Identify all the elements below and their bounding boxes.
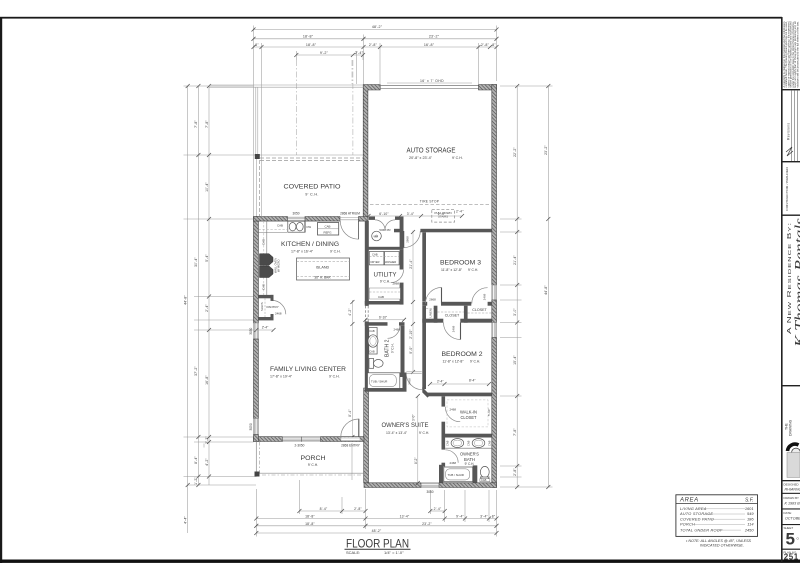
svg-text:TOTAL UNDER ROOF: TOTAL UNDER ROOF xyxy=(680,527,723,532)
svg-text:KITCHEN / DINING: KITCHEN / DINING xyxy=(281,241,339,248)
svg-text:CAB: CAB xyxy=(378,295,384,299)
svg-text:CAB: CAB xyxy=(262,239,266,245)
svg-text:REFG: REFG xyxy=(324,231,333,235)
svg-text:CAB: CAB xyxy=(325,224,331,228)
svg-text:18'-8": 18'-8" xyxy=(303,35,314,39)
svg-text:OWNER'S: OWNER'S xyxy=(460,452,479,457)
svg-text:DRAWN BY: DRAWN BY xyxy=(784,496,800,500)
svg-text:CAB: CAB xyxy=(372,252,378,256)
svg-text:3050: 3050 xyxy=(426,490,433,494)
svg-text:CLOSET: CLOSET xyxy=(445,314,460,318)
svg-text:17'-8" x 19'-4": 17'-8" x 19'-4" xyxy=(270,375,293,379)
svg-text:4'-2": 4'-2" xyxy=(348,308,352,316)
svg-text:WASHER: WASHER xyxy=(385,260,396,264)
svg-text:20'-8" x 23'-4": 20'-8" x 23'-4" xyxy=(409,156,433,160)
svg-text:23'-2": 23'-2" xyxy=(429,35,440,39)
svg-text:2668: 2668 xyxy=(429,297,436,301)
svg-text:8": 8" xyxy=(492,43,496,47)
svg-text:W/ MICRO: W/ MICRO xyxy=(277,259,281,272)
svg-text:BEDROOM 2: BEDROOM 2 xyxy=(442,351,483,358)
svg-text:OCTOBER: OCTOBER xyxy=(785,516,800,520)
svg-text:9' C.H.: 9' C.H. xyxy=(329,375,340,379)
svg-text:K 1983 B: K 1983 B xyxy=(785,502,800,506)
svg-text:2'-10": 2'-10" xyxy=(409,329,413,339)
svg-text:22'-2": 22'-2" xyxy=(513,146,517,156)
svg-text:1/4" = 1'-0": 1/4" = 1'-0" xyxy=(384,550,404,555)
svg-text:3'-0": 3'-0" xyxy=(412,414,416,421)
svg-text:CAB: CAB xyxy=(466,440,470,446)
svg-text:FLOOR PLAN: FLOOR PLAN xyxy=(346,539,409,551)
svg-text:9'-4": 9'-4" xyxy=(456,515,464,519)
svg-text:9' C.H.: 9' C.H. xyxy=(380,279,390,283)
svg-text:44'-8": 44'-8" xyxy=(544,284,548,294)
svg-text:5'-10": 5'-10" xyxy=(487,409,491,416)
svg-text:Revisions: Revisions xyxy=(787,123,791,140)
svg-text:4'-4": 4'-4" xyxy=(183,516,187,524)
svg-text:2'-4": 2'-4" xyxy=(456,209,464,213)
svg-text:TIRE STOP: TIRE STOP xyxy=(420,199,439,203)
svg-text:2868 ATRIUM: 2868 ATRIUM xyxy=(340,212,360,216)
svg-text:2'-8": 2'-8" xyxy=(354,507,362,511)
svg-text:2'-8": 2'-8" xyxy=(513,468,517,476)
svg-text:CLOSET: CLOSET xyxy=(461,415,477,420)
svg-text:INDICATED OTHERWISE.: INDICATED OTHERWISE. xyxy=(700,544,744,548)
svg-text:FAMILY LIVING CENTER: FAMILY LIVING CENTER xyxy=(270,366,346,373)
svg-text:17'-8" x 16'-4": 17'-8" x 16'-4" xyxy=(291,249,314,253)
svg-text:9' C.H.: 9' C.H. xyxy=(470,359,480,363)
svg-text:18'-8": 18'-8" xyxy=(306,43,317,47)
svg-text:11'-8" x 12'-8": 11'-8" x 12'-8" xyxy=(441,268,463,272)
svg-text:8'-4": 8'-4" xyxy=(469,379,475,383)
svg-text:48'-2": 48'-2" xyxy=(372,529,382,533)
svg-text:37'-2": 37'-2" xyxy=(194,365,198,375)
svg-text:48'-2": 48'-2" xyxy=(372,25,383,29)
svg-text:2868: 2868 xyxy=(405,236,409,243)
svg-text:BATH 2: BATH 2 xyxy=(384,340,390,358)
svg-text:11'-8" x 12'-8": 11'-8" x 12'-8" xyxy=(443,359,465,363)
svg-text:16'-8": 16'-8" xyxy=(424,43,435,47)
svg-text:CAB: CAB xyxy=(369,329,375,333)
svg-text:8": 8" xyxy=(492,515,496,519)
svg-text:K Thomas Rentals: K Thomas Rentals xyxy=(793,217,800,348)
svg-text:2'-8": 2'-8" xyxy=(369,43,378,47)
svg-text:5'-4": 5'-4" xyxy=(205,254,209,262)
svg-text:SHLVS: SHLVS xyxy=(260,302,264,311)
svg-text:3050: 3050 xyxy=(249,423,253,430)
svg-text:7'-8": 7'-8" xyxy=(194,120,198,128)
svg-text:CAB: CAB xyxy=(445,440,449,446)
svg-text:2'-4": 2'-4" xyxy=(437,380,443,384)
svg-text:2868: 2868 xyxy=(393,282,400,286)
svg-text:CAB: CAB xyxy=(277,224,283,228)
svg-text:23'-2": 23'-2" xyxy=(544,144,548,154)
svg-text:8'-4": 8'-4" xyxy=(320,507,328,511)
svg-text:CONTRACTOR / BUILDER: CONTRACTOR / BUILDER xyxy=(785,166,789,211)
svg-text:3'-4": 3'-4" xyxy=(407,212,415,216)
svg-text:9' C.H.: 9' C.H. xyxy=(419,431,429,435)
svg-text:BEDROOM 3: BEDROOM 3 xyxy=(440,259,481,266)
svg-text:2468: 2468 xyxy=(451,325,455,332)
svg-text:6'-10": 6'-10" xyxy=(379,315,387,319)
svg-text:8'-4": 8'-4" xyxy=(348,409,352,417)
svg-text:2'-4": 2'-4" xyxy=(355,51,364,55)
svg-text:CAB: CAB xyxy=(369,350,375,354)
svg-text:23'-2": 23'-2" xyxy=(422,522,432,526)
svg-text:2'-4": 2'-4" xyxy=(438,212,446,216)
svg-text:• NOTE: ALL ANGLES @ 45°, UNL: • NOTE: ALL ANGLES @ 45°, UNLESS xyxy=(686,539,752,543)
svg-text:2468: 2468 xyxy=(482,293,486,300)
svg-text:5: 5 xyxy=(786,530,795,549)
svg-text:3'-0": 3'-0" xyxy=(513,308,517,316)
svg-text:7'-8": 7'-8" xyxy=(205,120,209,128)
svg-text:2450: 2450 xyxy=(744,527,754,532)
svg-text:violators will be prosecuted t: violators will be prosecuted to the full… xyxy=(796,21,799,87)
svg-text:9' C.H.: 9' C.H. xyxy=(452,156,463,160)
svg-text:5068 PR: 5068 PR xyxy=(379,228,390,232)
svg-text:WALK-IN: WALK-IN xyxy=(460,410,477,415)
svg-text:LINEN: LINEN xyxy=(429,309,433,318)
svg-text:9' C.H.: 9' C.H. xyxy=(330,249,341,253)
svg-text:16' x 7' OHD: 16' x 7' OHD xyxy=(420,79,444,83)
svg-text:2'-8": 2'-8" xyxy=(481,43,490,47)
svg-text:2468: 2468 xyxy=(394,328,401,332)
svg-text:9'-0": 9'-0" xyxy=(409,346,413,354)
svg-text:CAB: CAB xyxy=(481,478,487,482)
svg-text:44'-8": 44'-8" xyxy=(183,294,187,304)
svg-text:DRYER: DRYER xyxy=(371,260,380,264)
svg-text:3'-4": 3'-4" xyxy=(480,515,488,519)
svg-text:AUTO STORAGE: AUTO STORAGE xyxy=(407,146,456,155)
svg-text:9' C.H.: 9' C.H. xyxy=(390,343,394,353)
svg-text:15'-4": 15'-4" xyxy=(513,354,517,364)
svg-text:2'-4": 2'-4" xyxy=(262,326,269,330)
svg-text:21'-4": 21'-4" xyxy=(409,259,413,269)
svg-text:PORCH: PORCH xyxy=(301,456,326,462)
svg-text:8'-4": 8'-4" xyxy=(194,456,198,464)
svg-text:S.F.: S.F. xyxy=(745,498,754,504)
svg-text:RHIANNON: RHIANNON xyxy=(785,487,800,491)
svg-text:ISLAND: ISLAND xyxy=(316,265,330,270)
svg-text:PANTRY: PANTRY xyxy=(267,305,279,309)
svg-text:2-3050: 2-3050 xyxy=(295,443,305,447)
svg-text:PORCH: PORCH xyxy=(680,522,695,527)
svg-text:SCALE:: SCALE: xyxy=(346,550,360,555)
svg-text:DESIGNED: DESIGNED xyxy=(784,482,799,486)
svg-text:2'-4": 2'-4" xyxy=(434,507,442,511)
svg-text:10'-4": 10'-4" xyxy=(205,181,209,191)
svg-text:CLOSET: CLOSET xyxy=(472,308,487,312)
svg-text:COVERED PATIO: COVERED PATIO xyxy=(284,184,341,191)
svg-text:6'-10": 6'-10" xyxy=(379,212,389,216)
svg-text:8'-2": 8'-2" xyxy=(414,457,418,464)
svg-text:251: 251 xyxy=(784,552,799,561)
svg-text:UTILITY: UTILITY xyxy=(374,272,397,278)
svg-text:30'-4": 30'-4" xyxy=(194,256,198,266)
svg-text:4'-2": 4'-2" xyxy=(205,458,209,466)
svg-text:9' C.H.: 9' C.H. xyxy=(468,268,478,272)
svg-text:OWNER'S SUITE: OWNER'S SUITE xyxy=(382,422,429,429)
svg-text:2468: 2468 xyxy=(275,311,282,315)
svg-text:DRAWING: DRAWING xyxy=(789,419,793,436)
svg-text:16'-8": 16'-8" xyxy=(205,374,209,384)
svg-text:9' C.H.: 9' C.H. xyxy=(305,193,319,197)
svg-text:2468: 2468 xyxy=(450,461,457,465)
svg-text:CAB: CAB xyxy=(487,440,491,446)
svg-text:TUB / SHUR: TUB / SHUR xyxy=(371,379,387,383)
svg-text:36" H. BAR: 36" H. BAR xyxy=(314,276,331,280)
svg-text:13'-4": 13'-4" xyxy=(400,515,410,519)
svg-text:114: 114 xyxy=(747,522,754,527)
svg-text:9' C.H.: 9' C.H. xyxy=(465,462,475,466)
svg-text:TUB / SHUR: TUB / SHUR xyxy=(448,473,464,477)
svg-text:21'-4": 21'-4" xyxy=(513,254,517,264)
svg-text:3050: 3050 xyxy=(249,327,253,334)
svg-text:DATE:: DATE: xyxy=(784,511,792,515)
svg-text:WH: WH xyxy=(374,234,378,238)
svg-text:3050: 3050 xyxy=(292,212,299,216)
svg-text:13'-4" x 13'-4": 13'-4" x 13'-4" xyxy=(386,431,408,435)
svg-text:18'-8": 18'-8" xyxy=(305,515,315,519)
svg-text:9' C.H.: 9' C.H. xyxy=(308,463,318,467)
svg-text:2468: 2468 xyxy=(408,378,412,385)
svg-text:DW: DW xyxy=(307,225,312,229)
svg-text:2468: 2468 xyxy=(450,407,457,411)
svg-text:18'-8": 18'-8" xyxy=(305,522,315,526)
svg-text:8": 8" xyxy=(255,43,259,47)
svg-text:AREA: AREA xyxy=(679,498,699,504)
svg-text:CAB: CAB xyxy=(262,284,266,290)
svg-text:2'-4": 2'-4" xyxy=(205,304,209,312)
svg-text:7'-8": 7'-8" xyxy=(513,428,517,436)
svg-text:2868 ENTRY: 2868 ENTRY xyxy=(341,443,361,447)
svg-text:9'-2": 9'-2" xyxy=(320,51,329,55)
